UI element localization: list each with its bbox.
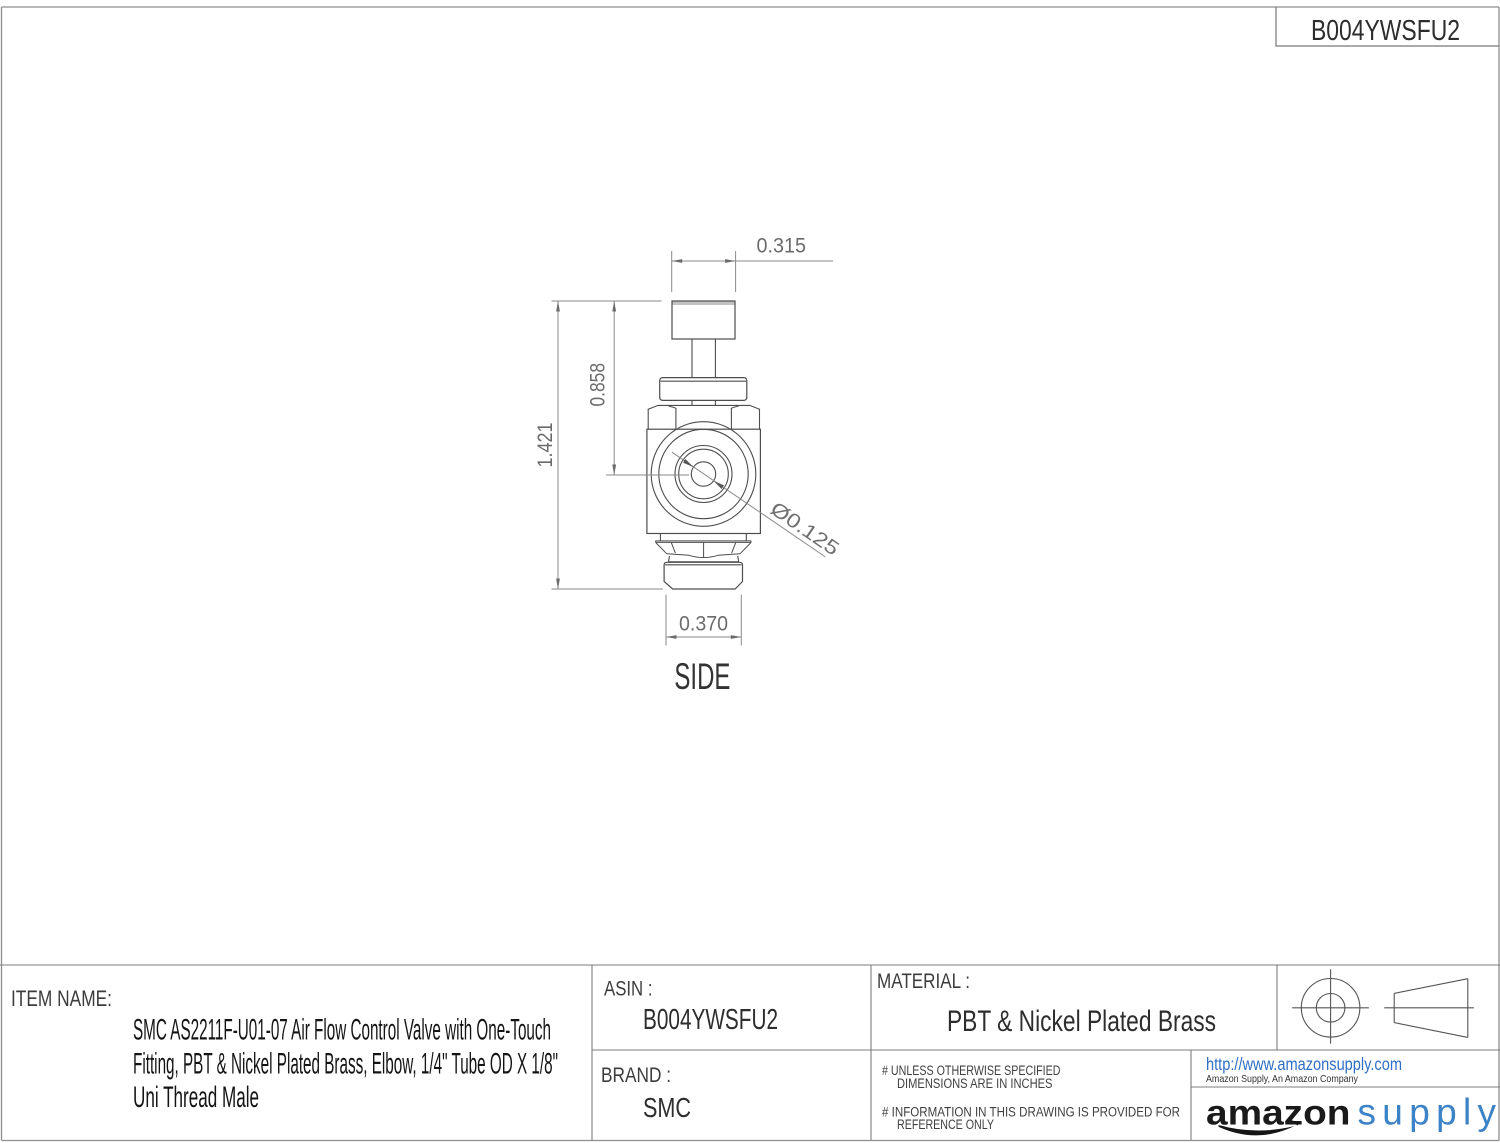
svg-text:0.858: 0.858 [587,363,610,407]
svg-text:http://www.amazonsupply.com: http://www.amazonsupply.com [1206,1054,1402,1074]
svg-text:DIMENSIONS ARE IN INCHES: DIMENSIONS ARE IN INCHES [897,1076,1053,1091]
svg-text:Uni Thread Male: Uni Thread Male [133,1081,259,1114]
svg-text:SMC: SMC [643,1092,691,1123]
svg-text:SIDE: SIDE [674,656,730,697]
svg-text:B004YWSFU2: B004YWSFU2 [1311,15,1460,47]
svg-text:supply: supply [1358,1092,1497,1133]
svg-text:BRAND :: BRAND : [601,1063,671,1087]
svg-text:1.421: 1.421 [534,423,557,468]
svg-text:REFERENCE ONLY: REFERENCE ONLY [897,1117,994,1132]
svg-text:B004YWSFU2: B004YWSFU2 [643,1004,778,1036]
svg-text:MATERIAL :: MATERIAL : [877,969,970,993]
svg-text:Ø0.125: Ø0.125 [766,498,843,560]
svg-text:PBT & Nickel Plated Brass: PBT & Nickel Plated Brass [947,1005,1216,1038]
svg-text:ITEM NAME:: ITEM NAME: [11,986,112,1011]
svg-text:ASIN :: ASIN : [604,978,653,1001]
svg-text:0.370: 0.370 [679,613,728,636]
svg-text:0.315: 0.315 [757,235,807,258]
svg-text:SMC AS2211F-U01-07 Air Flow Co: SMC AS2211F-U01-07 Air Flow Control Valv… [133,1014,551,1047]
svg-text:Fitting, PBT & Nickel Plated B: Fitting, PBT & Nickel Plated Brass, Elbo… [133,1048,558,1081]
svg-text:amazon: amazon [1206,1093,1351,1133]
svg-text:Amazon Supply, An Amazon Compa: Amazon Supply, An Amazon Company [1206,1074,1358,1085]
